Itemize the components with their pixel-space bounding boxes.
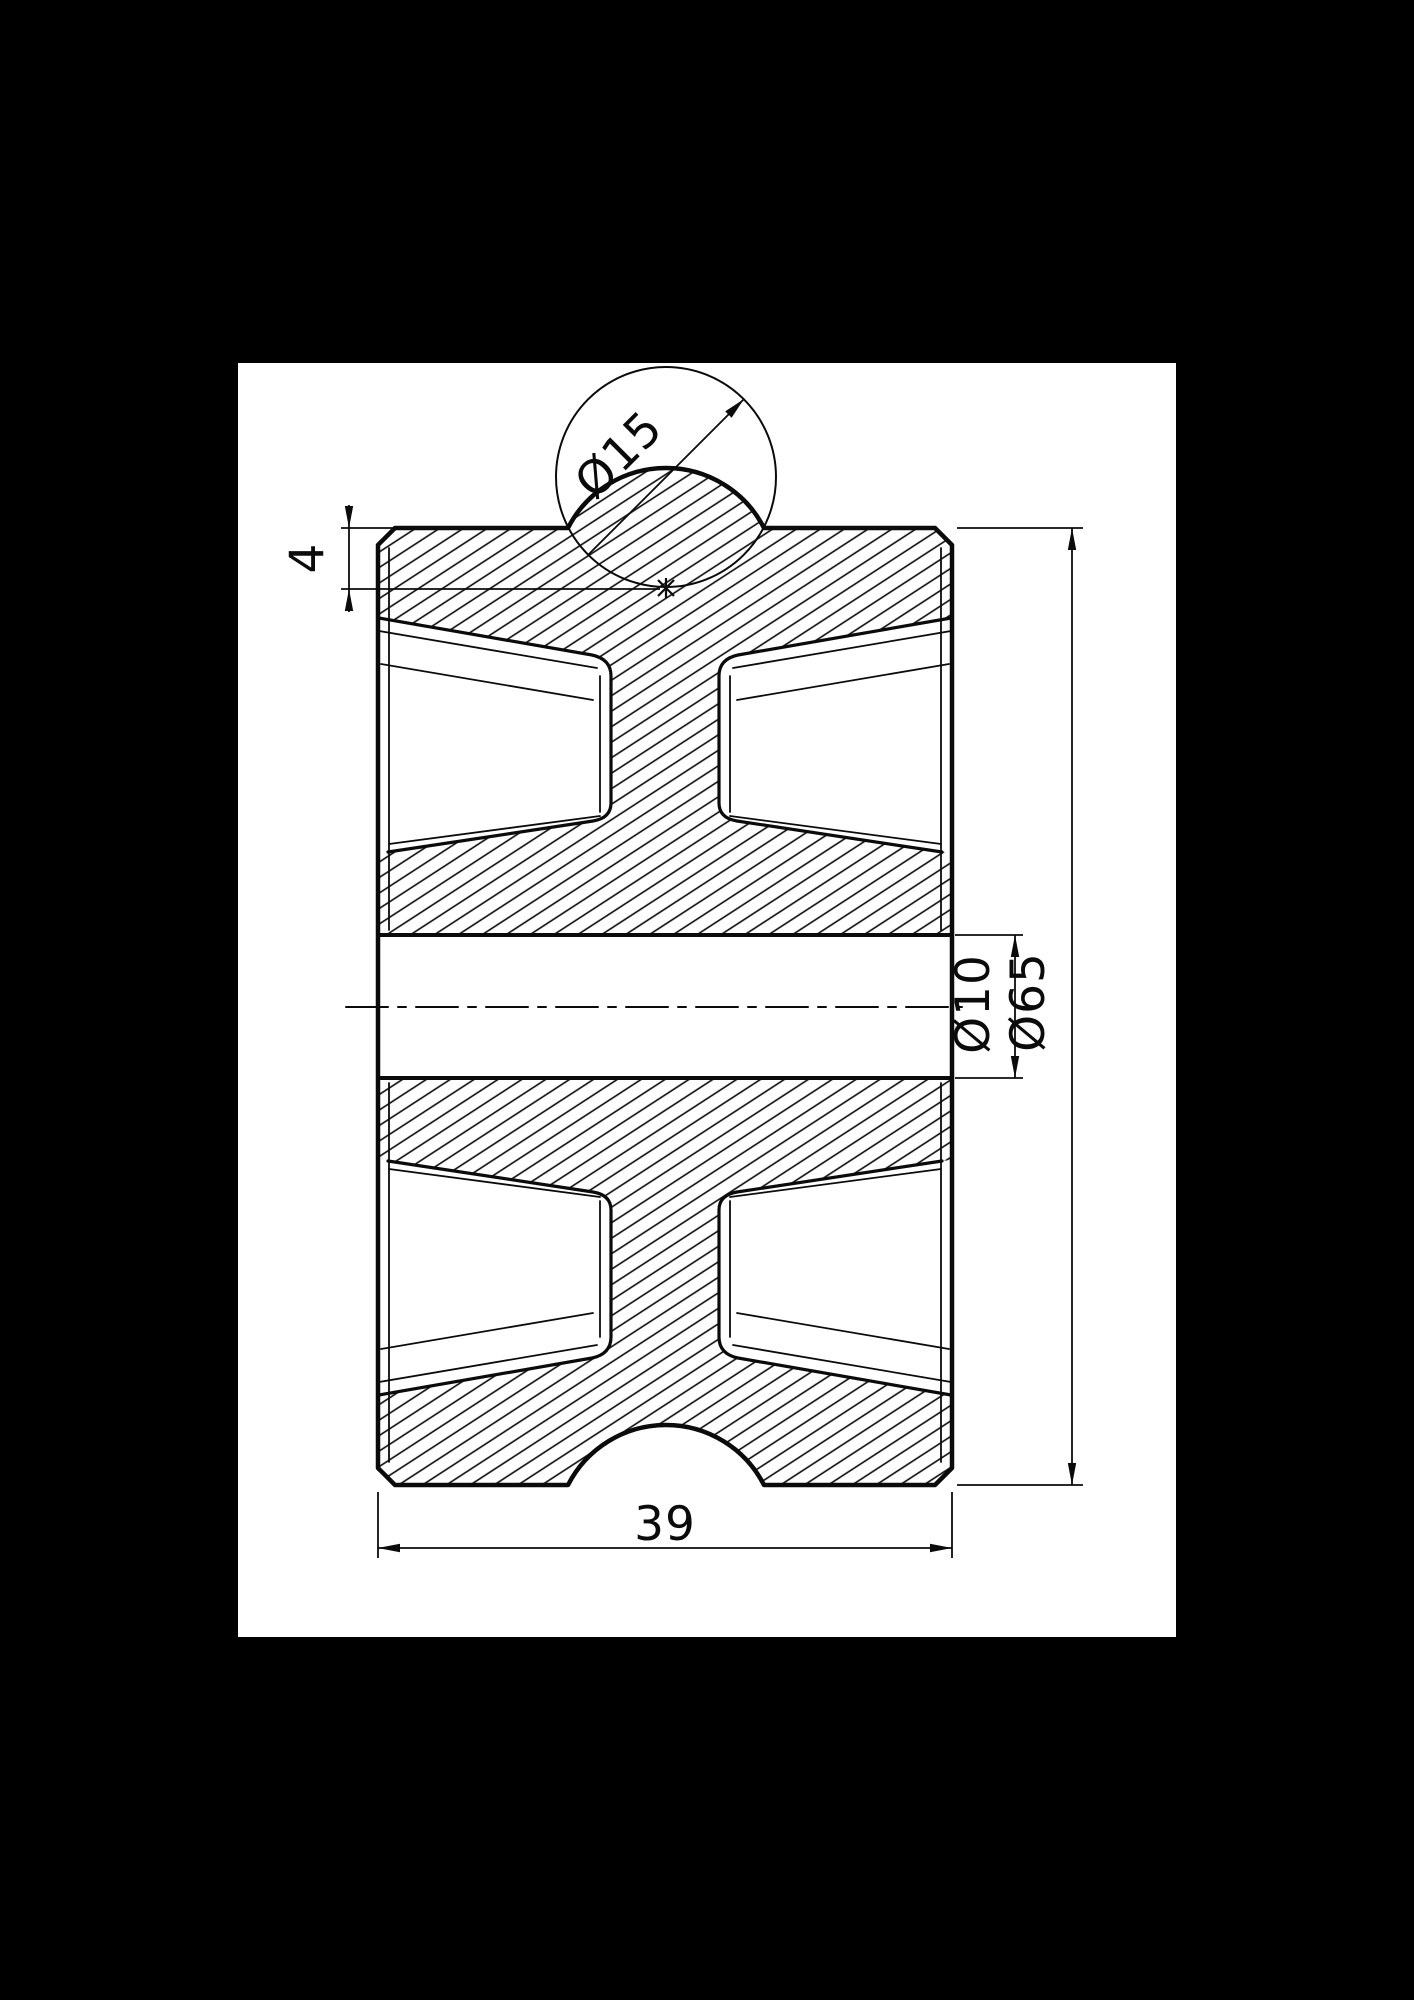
dimension-groove-depth-label: 4 [280, 543, 335, 574]
dimension-bore-diameter-label: Ø10 [946, 954, 1001, 1054]
screenshot-root: Ø15 4 Ø10 Ø65 39 [0, 0, 1414, 2000]
technical-drawing-canvas: Ø15 4 Ø10 Ø65 39 [0, 0, 1414, 2000]
dimension-outer-diameter-label: Ø65 [1001, 952, 1056, 1052]
dimension-overall-width-label: 39 [634, 1497, 696, 1552]
